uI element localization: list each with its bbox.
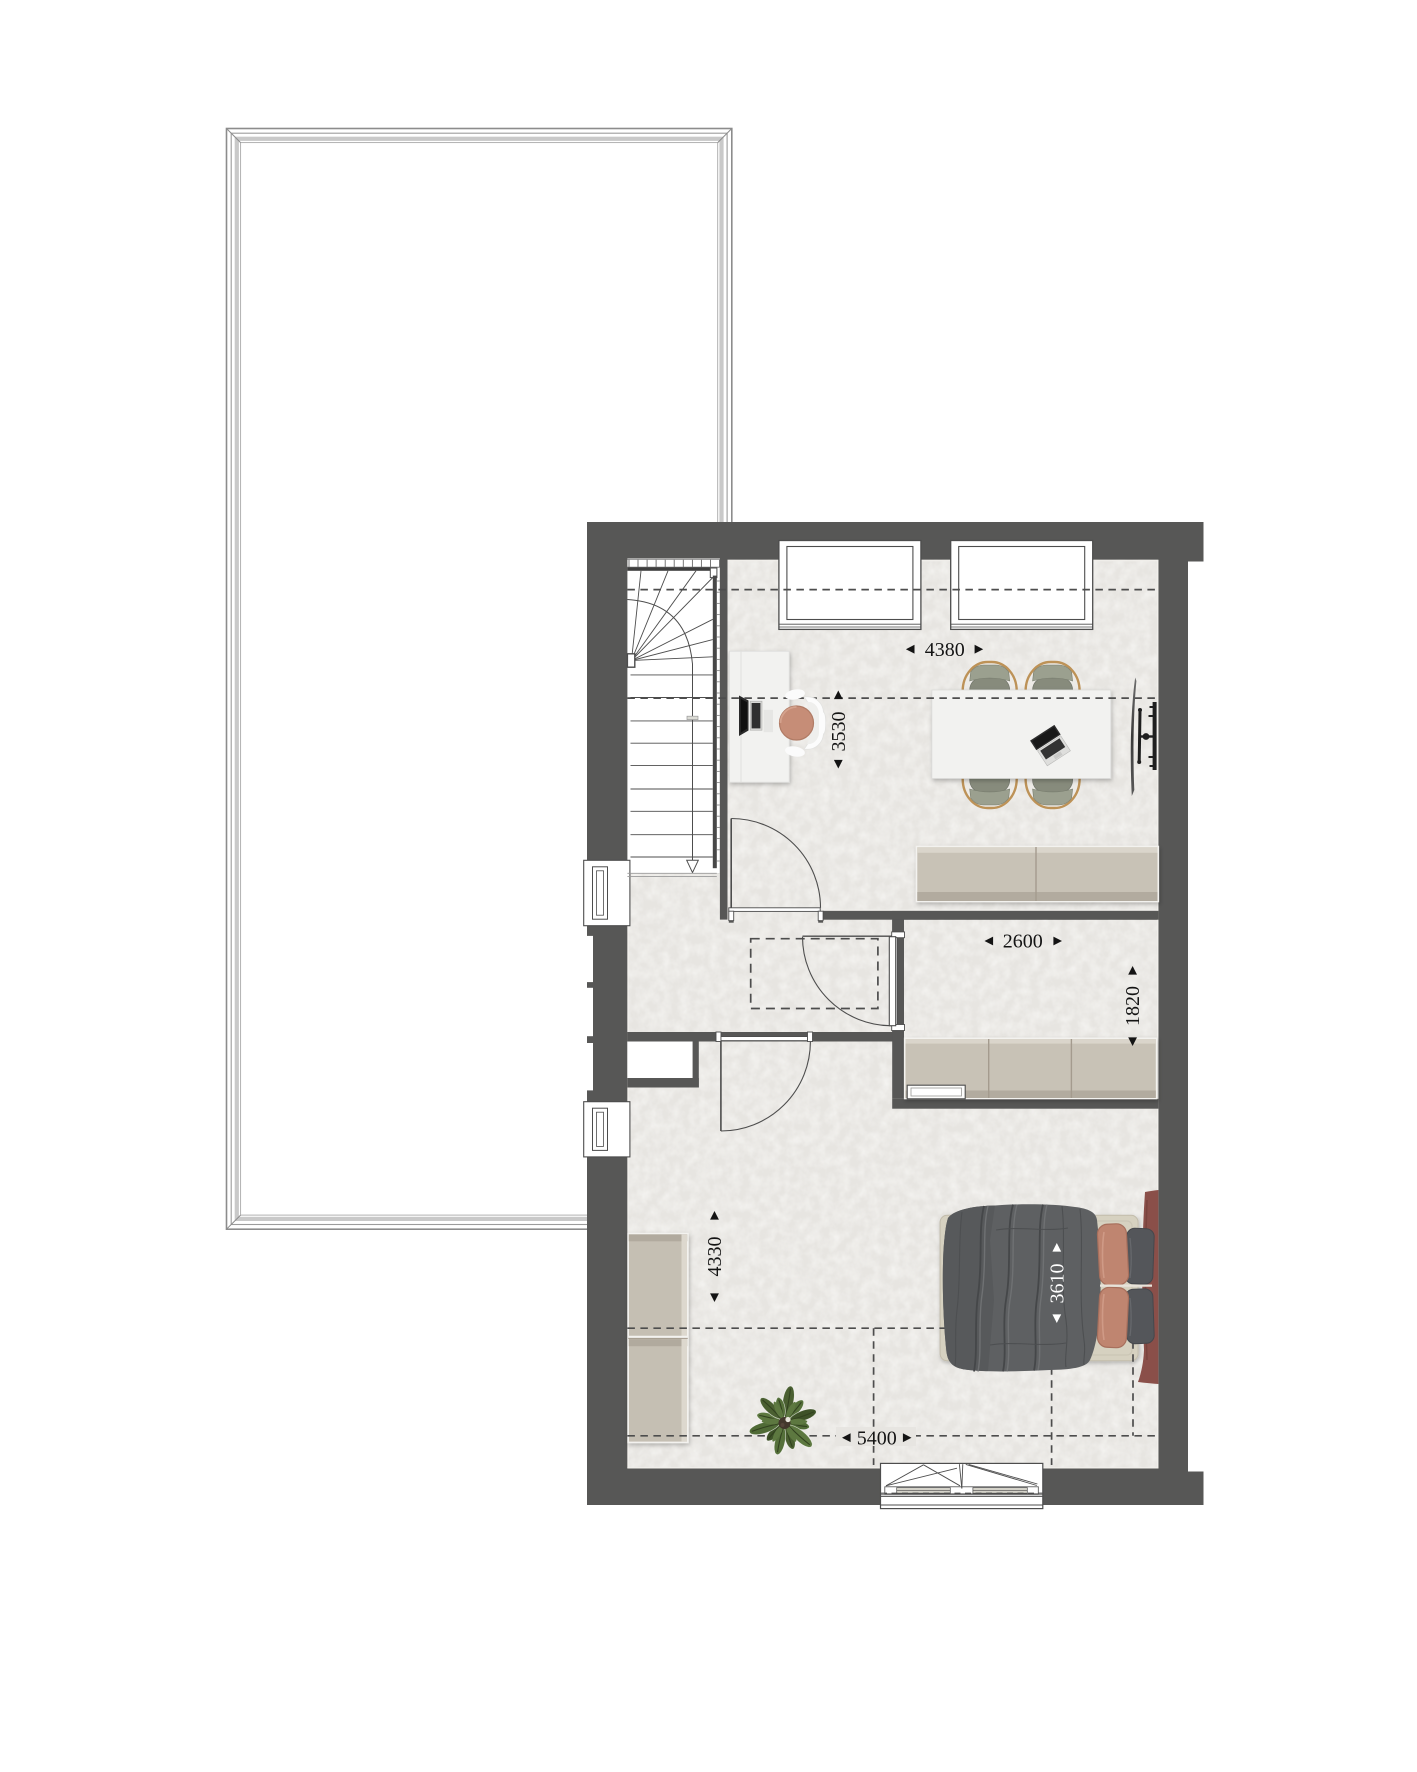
svg-text:3530: 3530: [828, 712, 850, 752]
svg-text:2600: 2600: [1003, 931, 1043, 953]
svg-text:1820: 1820: [1122, 986, 1144, 1026]
svg-text:3610: 3610: [1046, 1264, 1068, 1304]
svg-text:4330: 4330: [704, 1237, 726, 1277]
svg-text:5400: 5400: [857, 1427, 897, 1449]
svg-text:4380: 4380: [925, 639, 965, 661]
